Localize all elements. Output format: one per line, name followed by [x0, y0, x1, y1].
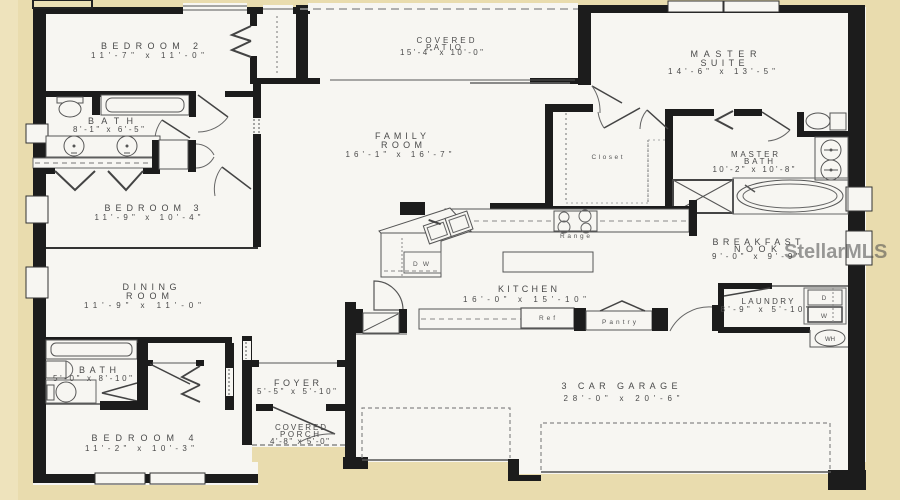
- svg-text:16'-1" x 16'-7": 16'-1" x 16'-7": [346, 150, 453, 159]
- svg-text:14'-6" x 13'-5": 14'-6" x 13'-5": [668, 67, 776, 76]
- svg-text:D: D: [822, 295, 827, 302]
- svg-text:4'-8" x 5'-0": 4'-8" x 5'-0": [270, 437, 330, 446]
- svg-text:11'-2" x 10'-3": 11'-2" x 10'-3": [85, 444, 195, 453]
- svg-text:BEDROOM 3: BEDROOM 3: [105, 203, 200, 213]
- svg-text:StellarMLS: StellarMLS: [784, 241, 887, 263]
- svg-text:3 CAR GARAGE: 3 CAR GARAGE: [562, 381, 679, 391]
- svg-text:W: W: [821, 313, 828, 320]
- svg-text:WH: WH: [825, 337, 835, 343]
- svg-text:11'-9" x 10'-4": 11'-9" x 10'-4": [95, 213, 202, 222]
- svg-text:Range: Range: [560, 233, 590, 240]
- svg-text:BEDROOM 2: BEDROOM 2: [101, 41, 199, 51]
- svg-text:Ref: Ref: [539, 315, 555, 322]
- svg-text:28'-0" x 20'-6": 28'-0" x 20'-6": [564, 394, 681, 403]
- svg-text:8'-1" x 6'-5": 8'-1" x 6'-5": [73, 125, 145, 134]
- svg-text:BEDROOM 4: BEDROOM 4: [92, 433, 195, 443]
- svg-text:11'-9" x 11'-0": 11'-9" x 11'-0": [84, 301, 202, 310]
- svg-text:11'-7" x 11'-0": 11'-7" x 11'-0": [91, 51, 205, 60]
